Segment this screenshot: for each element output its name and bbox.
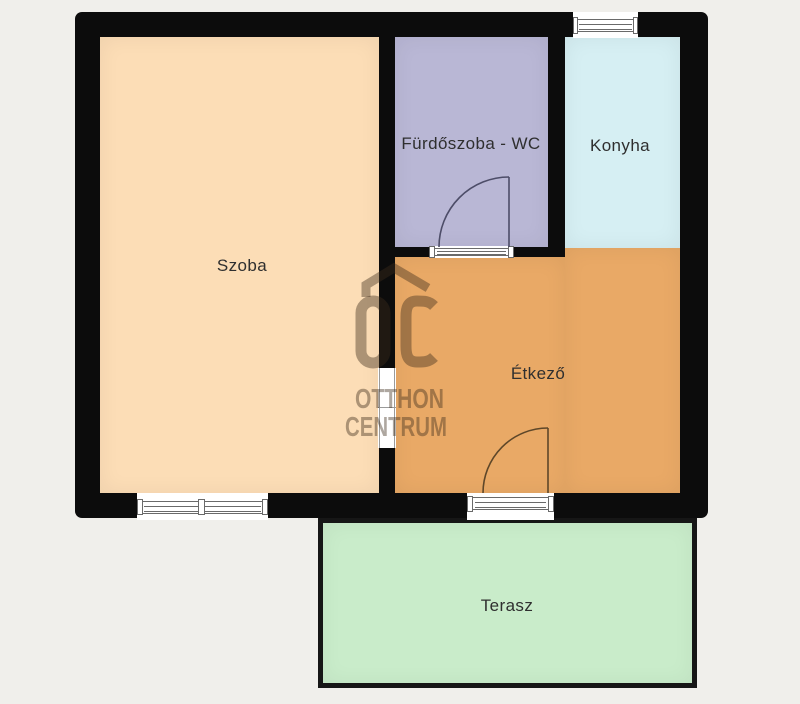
watermark-line2: CENTRUM: [345, 411, 447, 442]
watermark-letter-c-icon: [406, 301, 434, 362]
floorplan-canvas: Szoba Fürdőszoba - WC Konyha Étkező Tera…: [0, 0, 800, 704]
watermark-line1: OTTHON: [355, 383, 444, 414]
watermark-letter-o-icon: [361, 301, 385, 363]
watermark-roof-icon: [366, 268, 428, 297]
otthon-centrum-watermark: OTTHON CENTRUM: [0, 0, 800, 704]
